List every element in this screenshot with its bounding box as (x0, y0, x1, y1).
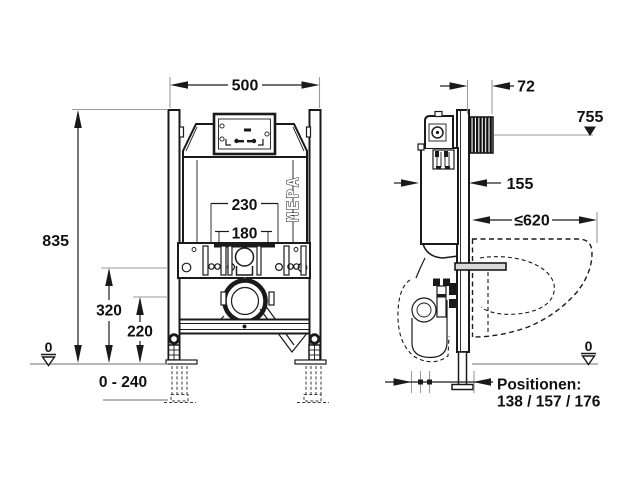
installation-diagram: MEPA 230 180 (0, 0, 640, 500)
front-datum-label: 0 (45, 339, 53, 355)
side-foot-plate (452, 385, 473, 390)
technical-drawing-canvas: MEPA 230 180 (0, 0, 640, 500)
dim-755-label: 755 (577, 109, 604, 126)
positions-title: Positionen: (497, 377, 581, 394)
lever-slot (244, 129, 251, 132)
dim-500-label: 500 (232, 78, 259, 95)
brand-logo: MEPA (283, 175, 302, 222)
flush-access-box (214, 114, 275, 154)
side-datum-label: 0 (585, 338, 593, 354)
front-right-post (310, 110, 321, 360)
dim-320-label: 320 (96, 303, 122, 320)
dim-180-label: 180 (232, 226, 258, 243)
dim-155-label: 155 (507, 176, 534, 193)
dim-72-label: 72 (517, 79, 535, 96)
dim-leg-range-label: 0 - 240 (99, 374, 147, 391)
positions-values: 138 / 157 / 176 (497, 394, 601, 411)
dim-835-label: 835 (42, 233, 69, 250)
side-cistern (418, 112, 458, 259)
dim-230-label: 230 (232, 197, 258, 214)
wall-anchor-block (470, 117, 493, 153)
dim-220-label: 220 (127, 324, 153, 341)
mounting-plate (178, 243, 310, 278)
dim-620-label: ≤620 (514, 213, 550, 230)
front-left-post (169, 110, 180, 360)
cross-rail (180, 320, 310, 334)
valve-clamp (433, 150, 454, 169)
pan-mounting-bracket (455, 263, 506, 270)
